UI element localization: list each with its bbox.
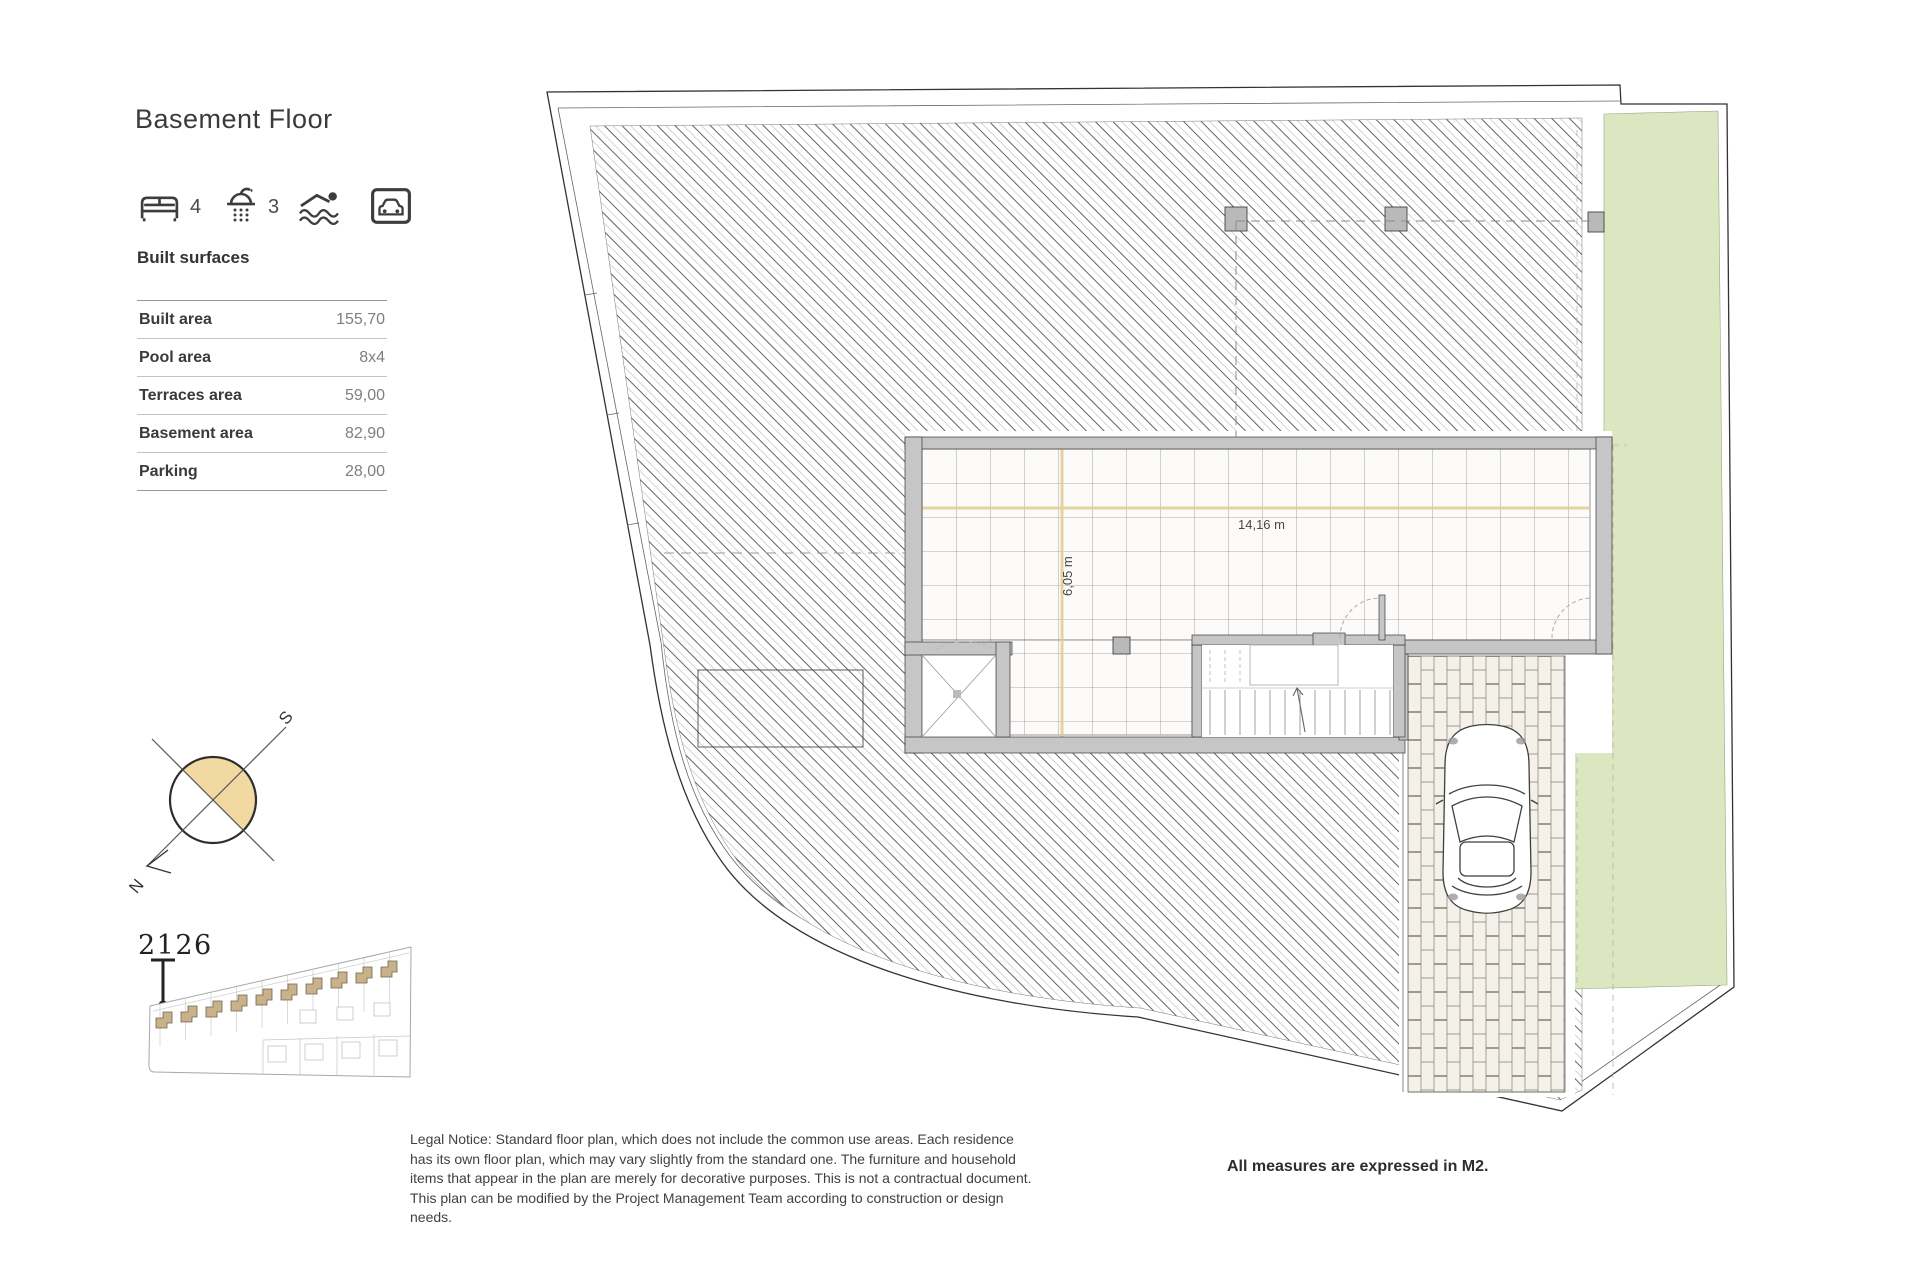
shower-icon: [222, 184, 260, 226]
car-top-view: [1436, 725, 1538, 914]
table-row: Pool area 8x4: [137, 338, 387, 376]
dimension-width-label: 14,16 m: [1238, 517, 1285, 532]
table-row: Basement area 82,90: [137, 414, 387, 452]
row-label: Pool area: [139, 349, 211, 367]
page-title: Basement Floor: [135, 104, 333, 135]
compass-south-label: S: [275, 707, 297, 728]
row-value: 8x4: [359, 349, 385, 367]
table-row: Terraces area 59,00: [137, 376, 387, 414]
row-label: Basement area: [139, 425, 253, 443]
legal-notice: Legal Notice: Standard floor plan, which…: [410, 1130, 1032, 1228]
table-row: Parking 28,00: [137, 452, 387, 491]
compass-north-label: N: [125, 875, 147, 897]
row-label: Built area: [139, 311, 212, 329]
baths-count: 3: [268, 196, 279, 219]
beds-count: 4: [190, 196, 201, 219]
elevator-shaft: [922, 641, 996, 737]
row-value: 28,00: [345, 463, 385, 481]
row-label: Terraces area: [139, 387, 242, 405]
row-value: 82,90: [345, 425, 385, 443]
garage-icon: [370, 186, 412, 226]
unit-number-label: 2126: [138, 930, 213, 961]
swimming-pool-icon: [296, 188, 344, 226]
row-label: Parking: [139, 463, 198, 481]
row-value: 59,00: [345, 387, 385, 405]
site-map: 2126: [138, 930, 411, 1077]
table-row: Built area 155,70: [137, 300, 387, 338]
built-surfaces-table: Built area 155,70 Pool area 8x4 Terraces…: [137, 300, 387, 491]
built-surfaces-title: Built surfaces: [137, 248, 249, 268]
bed-icon: [137, 189, 182, 225]
compass-rose: S N: [125, 707, 297, 897]
floor-plan-canvas: 14,16 m 6,05 m: [0, 0, 1920, 1280]
row-value: 155,70: [336, 311, 385, 329]
staircase: [1202, 645, 1393, 737]
dimension-depth-label: 6,05 m: [1060, 556, 1075, 596]
measures-note: All measures are expressed in M2.: [1227, 1158, 1488, 1176]
